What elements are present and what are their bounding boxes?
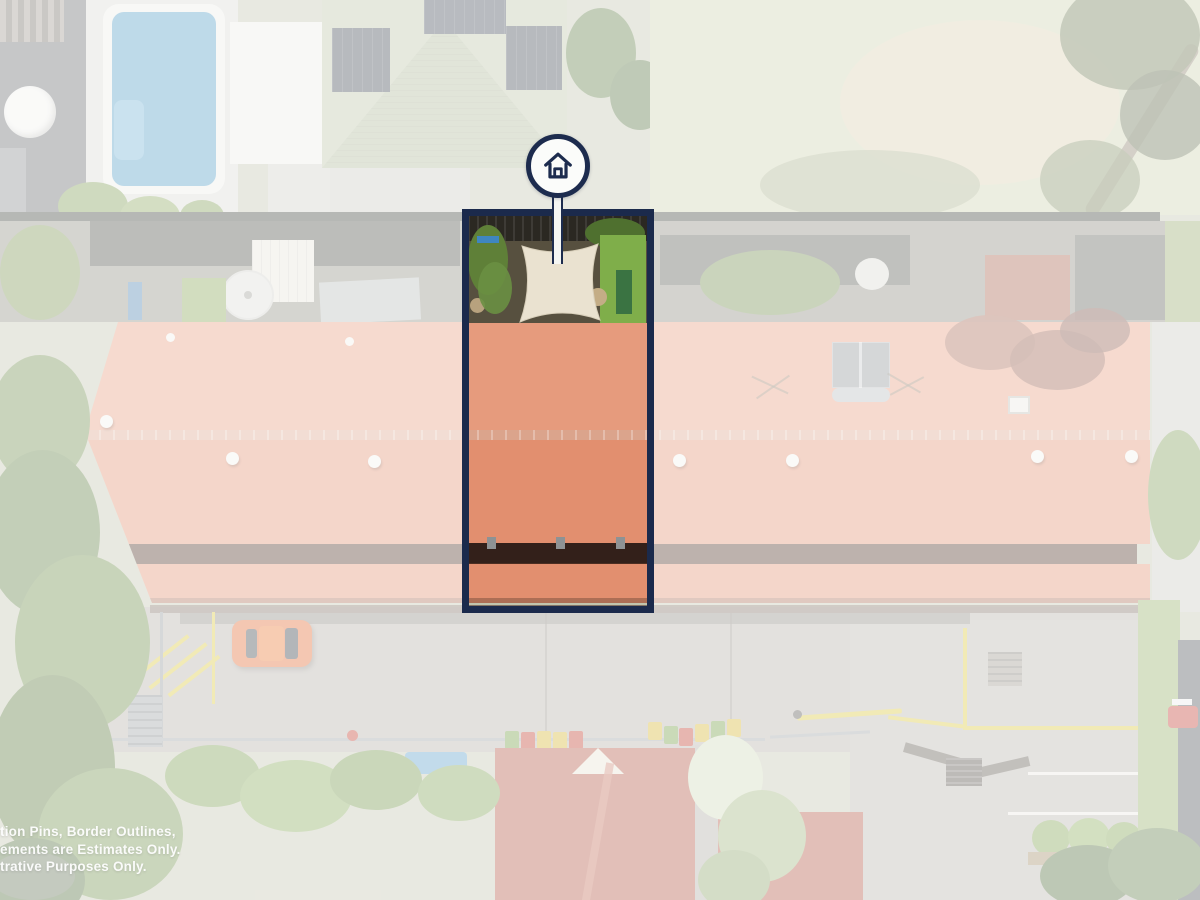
location-pin [526,134,590,198]
pin-stem [552,194,563,264]
aerial-photo-stage: tion Pins, Border Outlines, ements are E… [0,0,1200,900]
wash-left [0,215,468,607]
house-icon [541,149,575,183]
wash-top [0,0,1200,215]
disclaimer-line-1: tion Pins, Border Outlines, [0,824,176,839]
property-boundary-outline [462,209,654,613]
wash-right [648,215,1200,607]
disclaimer-line-3: trative Purposes Only. [0,859,147,874]
disclaimer-line-2: ements are Estimates Only. [0,842,181,857]
